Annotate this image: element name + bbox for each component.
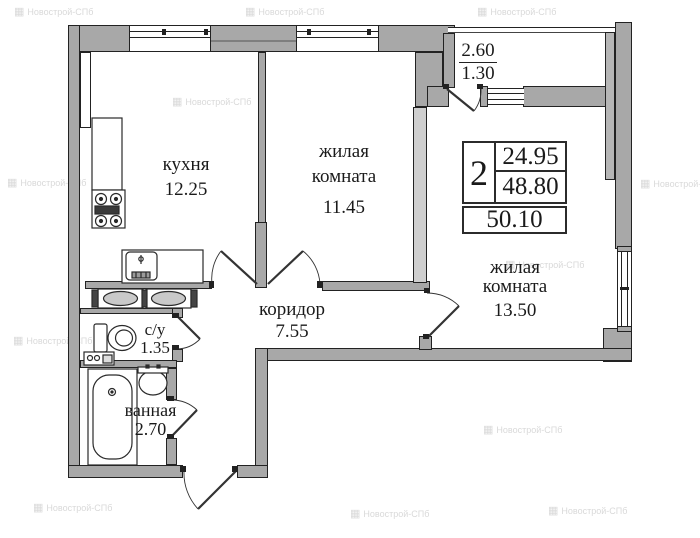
room-area: 13.50	[450, 301, 580, 320]
room-area: 1.35	[118, 339, 192, 357]
room-label-room1: жилая комната 11.45	[278, 139, 410, 220]
rooms-count: 2	[464, 143, 496, 202]
room-name: жилая	[450, 258, 580, 277]
room-name: комната	[278, 164, 410, 189]
washbasin-icon	[138, 365, 168, 395]
balcony-door	[447, 89, 481, 111]
door-jamb-caps	[162, 29, 629, 472]
room1-door	[268, 251, 320, 284]
room-label-room2: жилая комната 13.50	[450, 258, 580, 320]
vent-shaft-icon	[92, 289, 197, 308]
living-area: 24.95	[496, 143, 565, 172]
floor-plan: ▦Новострой-СПб ▦Новострой-СПб ▦Новострой…	[0, 0, 700, 538]
apartment-info-table: 2 24.95 48.80	[462, 141, 567, 204]
room-name: кухня	[118, 152, 254, 177]
total-area: 50.10	[464, 208, 565, 232]
room-label-kitchen: кухня 12.25	[118, 152, 254, 202]
entry-door	[184, 471, 236, 509]
room-label-corridor: коридор 7.55	[228, 299, 356, 343]
wc-cabinet-icon	[84, 352, 114, 365]
balcony-dimensions: 2.60 1.30	[446, 40, 510, 85]
room-label-wc: с/у 1.35	[118, 321, 192, 357]
balcony-area-total: 2.60	[459, 40, 496, 63]
room-name: комната	[450, 277, 580, 296]
room-area: 12.25	[118, 177, 254, 202]
balcony-area-reduced: 1.30	[446, 63, 510, 85]
room-area: 11.45	[278, 195, 410, 220]
kitchen-door	[212, 251, 257, 284]
area-without-balcony: 48.80	[496, 172, 565, 202]
room-name: с/у	[118, 321, 192, 339]
kitchen-sink-icon	[126, 252, 157, 280]
room-area: 2.70	[103, 420, 198, 439]
room-name: ванная	[103, 401, 198, 420]
total-area-box: 50.10	[462, 206, 567, 234]
room-name: коридор	[228, 299, 356, 321]
room-name: жилая	[278, 139, 410, 164]
room-area: 7.55	[228, 321, 356, 343]
room-label-bath: ванная 2.70	[103, 401, 198, 439]
doors-and-fixtures-layer	[0, 0, 700, 538]
